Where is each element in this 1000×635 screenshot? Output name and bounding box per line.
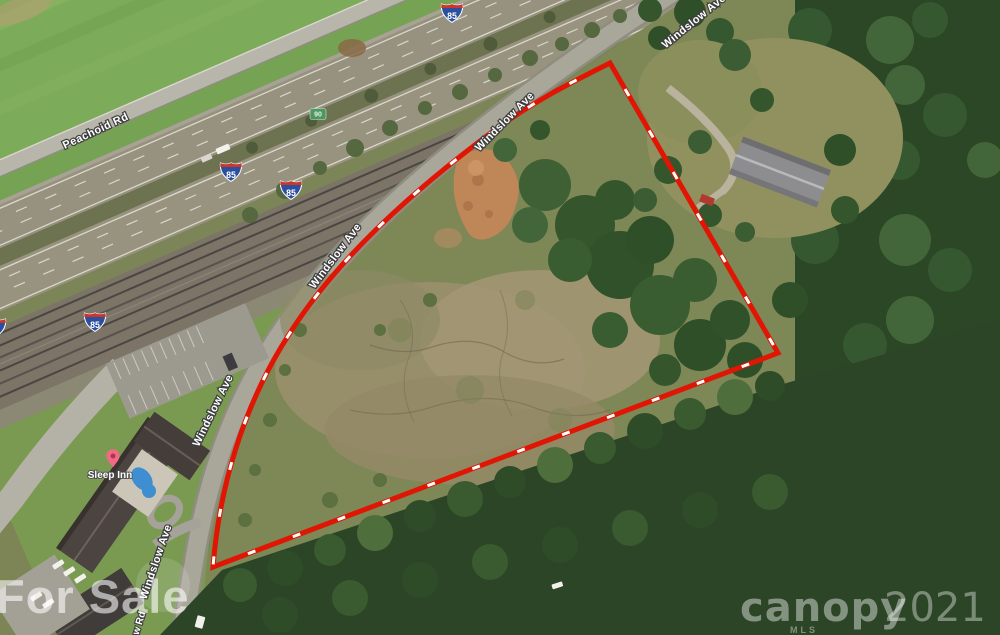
i85-number: 85 (286, 188, 296, 198)
hotel-label: Sleep Inn (88, 470, 132, 481)
i85-number: 85 (90, 320, 100, 330)
dirt-patch-small (338, 39, 366, 57)
i85-number: 85 (447, 11, 457, 21)
aerial-property-map: 85 85 85 85 85 90 Peachoid Rd Windslow (0, 0, 1000, 635)
brand-sub-watermark: MLS (790, 625, 818, 635)
satellite-scene: 85 85 85 85 85 90 Peachoid Rd Windslow (0, 0, 1000, 635)
year-watermark: 2021 (884, 585, 986, 631)
exit-number: 90 (314, 112, 322, 119)
brand-watermark: canopy (740, 585, 907, 631)
i85-number: 85 (226, 170, 236, 180)
exit-badge: 90 (310, 109, 326, 120)
for-sale-watermark: For Sale (0, 570, 189, 623)
